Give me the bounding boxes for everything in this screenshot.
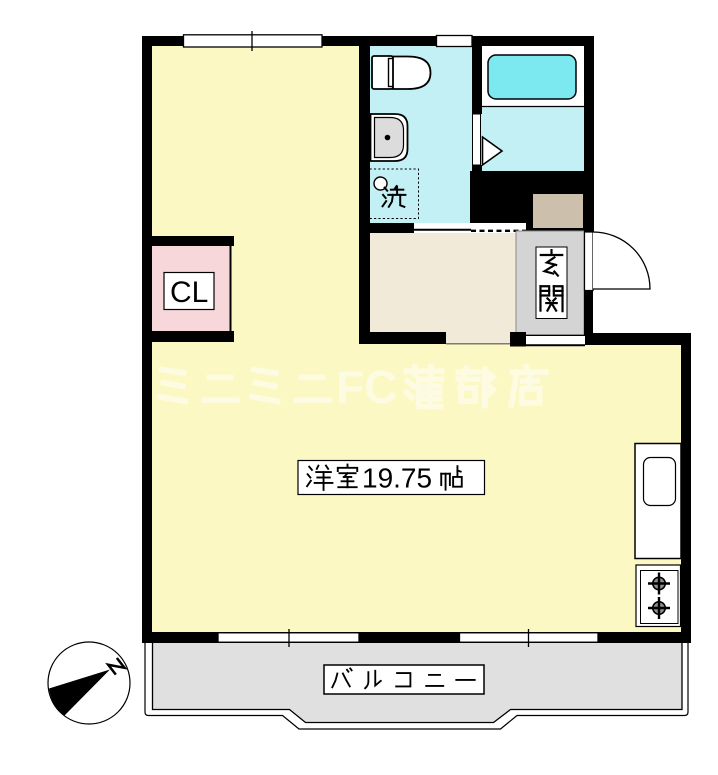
svg-text:19.75: 19.75 (362, 463, 432, 494)
svg-text:CL: CL (170, 276, 208, 309)
svg-text:FC: FC (336, 361, 397, 413)
